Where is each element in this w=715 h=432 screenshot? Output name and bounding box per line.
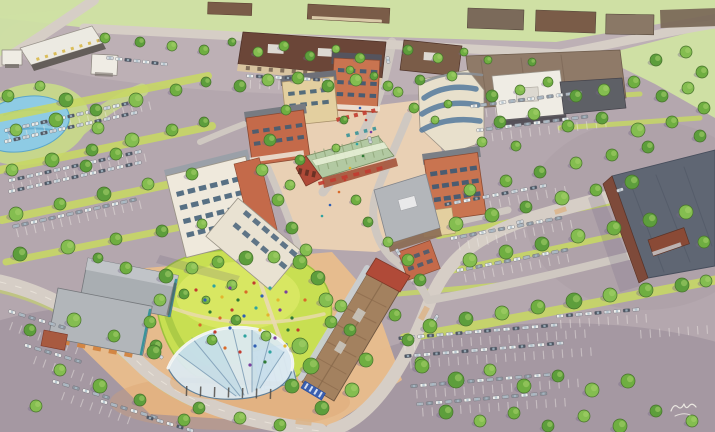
person-dot (254, 306, 257, 309)
tree-highlight (469, 186, 474, 191)
car-glass (497, 261, 500, 264)
person-dot (253, 344, 256, 347)
car (556, 341, 563, 345)
stripe (311, 101, 318, 106)
car (442, 351, 449, 355)
person-dot (230, 308, 233, 311)
car (522, 326, 529, 330)
car (473, 397, 480, 401)
car-glass (154, 62, 157, 64)
tree-highlight (291, 381, 297, 387)
stripe (337, 92, 344, 96)
car-glass (476, 398, 479, 400)
tree-highlight (539, 168, 544, 173)
tree-highlight (245, 253, 251, 259)
tree-highlight (705, 277, 710, 282)
tree-highlight (289, 181, 294, 186)
car-glass (306, 78, 309, 80)
car-glass (475, 197, 478, 200)
tree-highlight (505, 247, 511, 253)
tree-highlight (349, 326, 354, 331)
car-glass (315, 78, 318, 80)
car (133, 59, 140, 63)
car-glass (479, 379, 482, 381)
car-glass (439, 334, 442, 336)
car-glass (635, 308, 638, 310)
car-glass (511, 346, 514, 348)
car-glass (287, 77, 290, 79)
car (632, 308, 639, 312)
person-dot (268, 286, 271, 289)
person-dot (252, 281, 255, 284)
person-dot (268, 350, 271, 353)
car (550, 323, 557, 327)
tree-highlight (487, 57, 491, 61)
car (531, 325, 538, 329)
car-glass (568, 314, 571, 316)
car-glass (563, 249, 566, 252)
person-dot (220, 295, 223, 298)
person-dot (356, 143, 359, 146)
car-glass (544, 252, 547, 255)
tree-highlight (95, 106, 100, 111)
car (492, 396, 499, 400)
car (518, 98, 525, 102)
car-glass (543, 325, 546, 327)
car-glass (506, 260, 509, 263)
tree-highlight (387, 238, 392, 243)
person-dot (303, 298, 306, 301)
car-glass (428, 402, 431, 404)
tree-highlight (99, 381, 105, 387)
car-glass (494, 194, 497, 197)
car-glass (458, 332, 461, 334)
car-glass (534, 326, 537, 328)
tree-highlight (310, 360, 317, 367)
car (505, 376, 512, 380)
car (528, 344, 535, 348)
tree-highlight (681, 280, 687, 286)
aerial-site-rendering (0, 0, 715, 432)
tree-highlight (685, 48, 690, 53)
tree-highlight (217, 258, 222, 263)
car-glass (535, 254, 538, 257)
car-glass (536, 374, 539, 376)
car (541, 324, 548, 328)
car (575, 313, 582, 317)
person-dot (223, 346, 226, 349)
tree-highlight (567, 122, 572, 127)
tree-highlight (491, 92, 496, 97)
stripe (246, 66, 250, 70)
car-glass (542, 392, 545, 394)
car (246, 74, 253, 78)
person-dot (258, 328, 261, 331)
tree-highlight (305, 246, 310, 251)
person-dot (228, 286, 231, 289)
person-dot (236, 298, 239, 301)
car-glass (583, 116, 586, 118)
car-glass (558, 94, 561, 96)
person-dot (242, 314, 245, 317)
car-glass (481, 231, 484, 234)
person-dot (284, 290, 287, 293)
tree-highlight (429, 321, 435, 327)
tree-highlight (397, 88, 402, 93)
car-glass (492, 348, 495, 350)
car (416, 402, 423, 406)
car (414, 353, 421, 357)
car (454, 399, 461, 403)
car-glass (498, 378, 501, 380)
tree-highlight (469, 255, 475, 261)
car-glass (467, 331, 470, 333)
car-glass (426, 353, 429, 355)
tree-highlight (149, 318, 154, 323)
car-glass (523, 394, 526, 396)
tree-highlight (611, 151, 616, 156)
rooftop-unit (318, 48, 332, 57)
person-dot (278, 308, 281, 311)
tree-highlight (421, 361, 427, 367)
outparcel-building (2, 50, 22, 65)
tree-highlight (139, 396, 144, 401)
tree-highlight (533, 110, 538, 115)
car-glass (479, 129, 482, 131)
tree-highlight (655, 407, 660, 412)
car (521, 393, 528, 397)
north-strip-building (606, 14, 654, 35)
tree-highlight (135, 95, 141, 101)
car (527, 97, 534, 101)
car (566, 313, 573, 317)
tree-highlight (619, 421, 625, 427)
car-glass (501, 101, 504, 103)
car-glass (606, 311, 609, 313)
car-glass (118, 58, 121, 60)
car-glass (277, 76, 280, 78)
car-glass (432, 383, 435, 385)
car (585, 312, 592, 316)
tree-highlight (335, 46, 339, 50)
rendering-canvas (0, 0, 715, 432)
car-glass (466, 199, 469, 202)
tree-highlight (113, 332, 118, 337)
car-glass (511, 100, 514, 102)
car-glass (504, 396, 507, 398)
tree-highlight (505, 177, 510, 182)
car-glass (492, 102, 495, 104)
car (471, 349, 478, 353)
person-dot (203, 298, 206, 301)
person-dot (338, 191, 341, 194)
tree-highlight (269, 136, 274, 141)
car (543, 120, 550, 124)
car-glass (482, 104, 485, 106)
car (410, 384, 417, 388)
car-glass (510, 226, 513, 229)
car-glass (520, 99, 523, 101)
person-dot (329, 204, 332, 207)
car-glass (485, 195, 488, 198)
tree-highlight (19, 249, 25, 255)
car (524, 122, 531, 126)
car (417, 335, 424, 339)
car-glass (555, 119, 558, 121)
tree-highlight (265, 332, 270, 337)
car (534, 374, 541, 378)
tree-highlight (419, 276, 424, 281)
tree-highlight (499, 118, 504, 123)
tree-highlight (355, 76, 360, 81)
tree-highlight (153, 347, 159, 353)
car-glass (508, 377, 511, 379)
car-glass (109, 57, 112, 59)
tree-highlight (115, 235, 120, 240)
car (115, 57, 122, 61)
car-glass (574, 117, 577, 119)
tree-highlight (445, 407, 451, 413)
car-glass (527, 375, 530, 377)
person-dot (228, 326, 231, 329)
car (552, 118, 559, 122)
car (467, 379, 474, 383)
tree-highlight (297, 74, 302, 79)
car-glass (488, 128, 491, 130)
car (556, 93, 563, 97)
car (623, 309, 630, 313)
car-glass (466, 399, 469, 401)
tree-highlight (627, 376, 633, 382)
person-dot (344, 179, 347, 182)
tree-highlight (437, 54, 442, 59)
car (518, 345, 525, 349)
tree-highlight (699, 132, 704, 137)
tree-highlight (183, 416, 188, 421)
car (455, 331, 462, 335)
car-glass (483, 348, 486, 350)
tree-highlight (299, 156, 304, 161)
tree-highlight (407, 256, 412, 261)
car-glass (559, 342, 562, 344)
tree-highlight (161, 227, 166, 232)
tree-highlight (235, 316, 240, 321)
tree-highlight (601, 114, 606, 119)
car (160, 62, 167, 66)
tree-highlight (547, 422, 552, 427)
car (530, 393, 537, 397)
person-dot (208, 310, 211, 313)
tree-highlight (413, 104, 418, 109)
tree-highlight (203, 118, 208, 123)
car (493, 328, 500, 332)
tree-highlight (299, 257, 305, 263)
car (571, 116, 578, 120)
person-dot (321, 215, 324, 218)
tree-highlight (309, 52, 314, 57)
car-glass (523, 188, 526, 191)
car-glass (441, 382, 444, 384)
tree-highlight (513, 409, 518, 414)
car-glass (462, 235, 465, 238)
tree-highlight (523, 381, 529, 387)
car-glass (387, 59, 390, 62)
person-dot (365, 119, 368, 122)
car (106, 56, 113, 60)
car (275, 76, 282, 80)
tree-highlight (613, 223, 619, 229)
stripe (322, 100, 329, 105)
car-glass (504, 192, 507, 195)
car-glass (507, 125, 510, 127)
north-strip-building (660, 8, 715, 28)
tree-highlight (15, 126, 20, 131)
person-dot (213, 330, 216, 333)
car-glass (515, 327, 518, 329)
car (502, 395, 509, 399)
car (461, 349, 468, 353)
car-glass (429, 334, 432, 336)
car (514, 123, 521, 127)
person-dot (266, 313, 269, 316)
stripe (269, 68, 273, 72)
car (515, 375, 522, 379)
tree-highlight (175, 86, 180, 91)
car-glass (505, 328, 508, 330)
tree-highlight (547, 78, 552, 83)
car (433, 352, 440, 356)
car-glass (557, 217, 560, 220)
person-dot (218, 316, 221, 319)
tree-highlight (645, 285, 651, 291)
person-dot (194, 288, 197, 291)
tree-highlight (321, 403, 327, 409)
car-glass (487, 263, 490, 266)
tree-highlight (447, 101, 451, 105)
tree-highlight (125, 264, 130, 269)
tree-highlight (575, 92, 580, 97)
tree-highlight (159, 296, 164, 301)
car (256, 75, 263, 79)
tree-highlight (561, 193, 567, 199)
tree-highlight (655, 56, 660, 61)
tree-highlight (205, 78, 210, 83)
car (512, 327, 519, 331)
person-dot (260, 294, 263, 297)
tree-highlight (171, 126, 176, 131)
car-glass (419, 403, 422, 405)
tree-highlight (365, 355, 371, 361)
car (581, 115, 588, 119)
car (508, 99, 515, 103)
tree-highlight (257, 48, 262, 53)
person-dot (248, 363, 251, 366)
car (303, 77, 310, 81)
tree-highlight (340, 302, 345, 307)
tree-highlight (407, 46, 412, 51)
tree-highlight (115, 150, 120, 155)
tree-highlight (519, 86, 524, 91)
tree-highlight (455, 374, 462, 381)
car (613, 309, 620, 313)
tree-highlight (211, 336, 216, 341)
tree-highlight (91, 146, 96, 151)
car (486, 127, 493, 131)
tree-highlight (419, 76, 424, 81)
tree-highlight (685, 207, 691, 213)
car (511, 394, 518, 398)
car-glass (420, 335, 423, 337)
car-glass (546, 374, 549, 376)
stripe (338, 68, 345, 72)
tree-highlight (51, 155, 57, 161)
stripe (369, 94, 376, 98)
car (524, 375, 531, 379)
car-glass (517, 376, 520, 378)
car-glass (524, 326, 527, 328)
tree-highlight (317, 273, 323, 279)
tree-highlight (703, 238, 708, 243)
tree-highlight (55, 115, 61, 121)
car-glass (545, 120, 548, 122)
tree-highlight (691, 417, 696, 422)
car-glass (548, 219, 551, 222)
tree-highlight (139, 38, 144, 43)
car (604, 310, 611, 314)
tree-highlight (631, 177, 637, 183)
car-glass (549, 343, 552, 345)
person-dot (370, 131, 373, 134)
tree-highlight (491, 210, 497, 216)
car (484, 329, 491, 333)
car-glass (249, 75, 252, 77)
stripe (359, 93, 366, 97)
person-dot (286, 328, 289, 331)
tree-highlight (299, 340, 306, 347)
car (505, 124, 512, 128)
tree-highlight (367, 218, 372, 223)
car (490, 347, 497, 351)
person-dot (359, 107, 362, 110)
tree-highlight (591, 385, 597, 391)
tree-highlight (595, 186, 600, 191)
tree-highlight (59, 200, 64, 205)
tree-highlight (583, 412, 588, 417)
car (436, 333, 443, 337)
person-dot (244, 290, 247, 293)
car-glass (517, 124, 520, 126)
car (540, 392, 547, 396)
tree-highlight (239, 82, 244, 87)
tree-highlight (603, 86, 608, 91)
tree-highlight (183, 290, 188, 295)
tree-highlight (351, 385, 357, 391)
stripe (288, 91, 295, 96)
tree-highlight (501, 308, 507, 314)
tree-highlight (531, 59, 535, 63)
tree-highlight (59, 366, 64, 371)
car-glass (538, 220, 541, 223)
person-dot (349, 167, 352, 170)
tree-highlight (7, 92, 12, 97)
car (499, 100, 506, 104)
tree-highlight (285, 106, 290, 111)
person-dot (238, 350, 241, 353)
car-glass (500, 228, 503, 231)
tree-highlight (537, 302, 543, 308)
stripe (310, 89, 317, 94)
car-glass (473, 349, 476, 351)
